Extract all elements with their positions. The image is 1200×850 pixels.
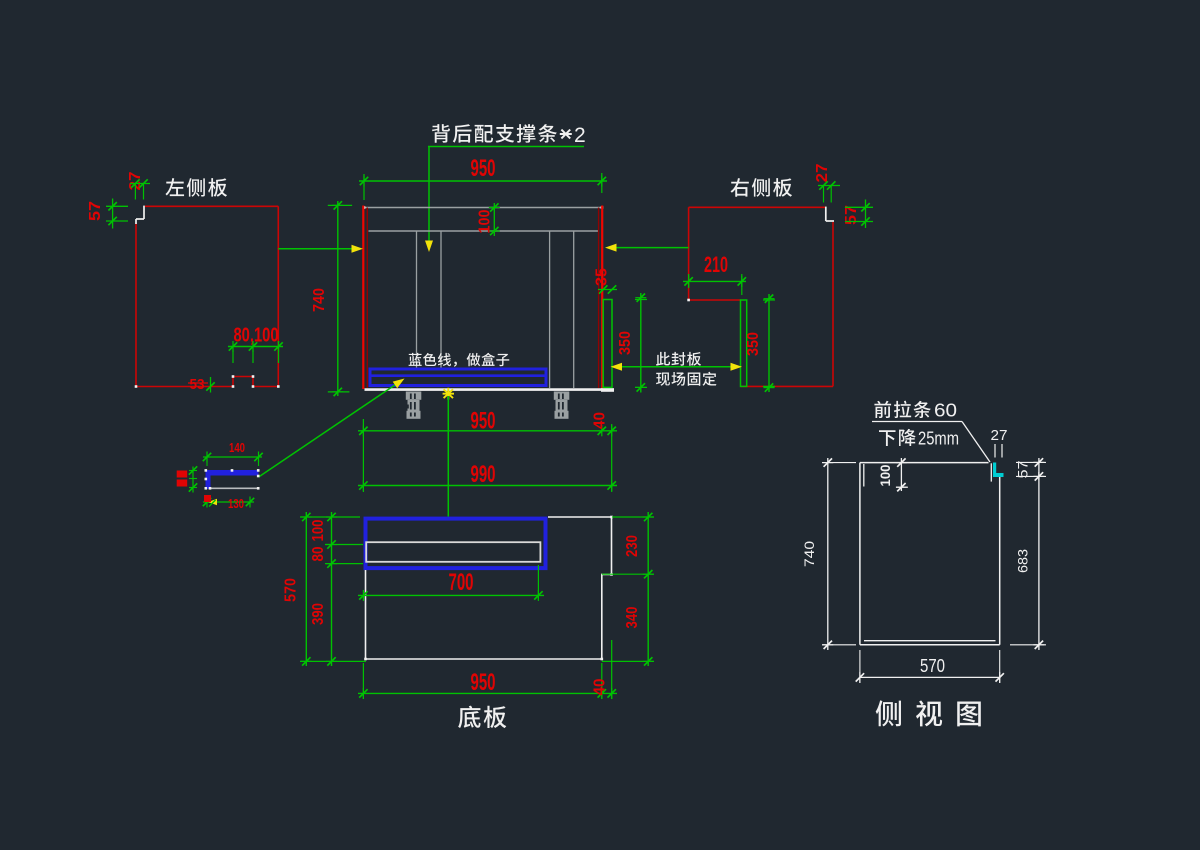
svg-text:60: 60 <box>934 400 957 421</box>
svg-text:57: 57 <box>1015 460 1031 478</box>
svg-text:350: 350 <box>745 332 762 356</box>
svg-text:40: 40 <box>592 678 609 695</box>
svg-text:990: 990 <box>471 461 496 488</box>
svg-text:950: 950 <box>471 669 496 696</box>
svg-text:2: 2 <box>574 124 586 147</box>
svg-text:340: 340 <box>624 606 641 628</box>
svg-text:950: 950 <box>471 408 496 435</box>
svg-text:80: 80 <box>310 546 327 561</box>
svg-text:570: 570 <box>920 656 945 676</box>
svg-text:100: 100 <box>310 519 327 541</box>
svg-text:27: 27 <box>814 163 831 182</box>
svg-text:25mm: 25mm <box>918 428 959 449</box>
svg-text:130: 130 <box>228 496 244 511</box>
svg-text:350: 350 <box>617 331 634 355</box>
svg-text:700: 700 <box>449 569 474 596</box>
svg-text:40: 40 <box>592 412 609 429</box>
svg-text:683: 683 <box>1015 549 1031 573</box>
svg-text:100: 100 <box>477 209 494 233</box>
svg-text:100: 100 <box>877 464 893 486</box>
svg-text:35: 35 <box>594 268 611 286</box>
svg-text:230: 230 <box>624 535 641 557</box>
svg-text:950: 950 <box>471 155 496 182</box>
svg-text:740: 740 <box>801 541 817 567</box>
svg-text:570: 570 <box>283 578 300 602</box>
svg-text:27: 27 <box>991 427 1008 444</box>
svg-text:210: 210 <box>704 252 728 277</box>
svg-text:740: 740 <box>311 288 328 312</box>
svg-text:390: 390 <box>310 603 327 625</box>
svg-text:57: 57 <box>87 201 104 221</box>
svg-text:140: 140 <box>229 440 245 455</box>
svg-text:53: 53 <box>190 376 205 393</box>
